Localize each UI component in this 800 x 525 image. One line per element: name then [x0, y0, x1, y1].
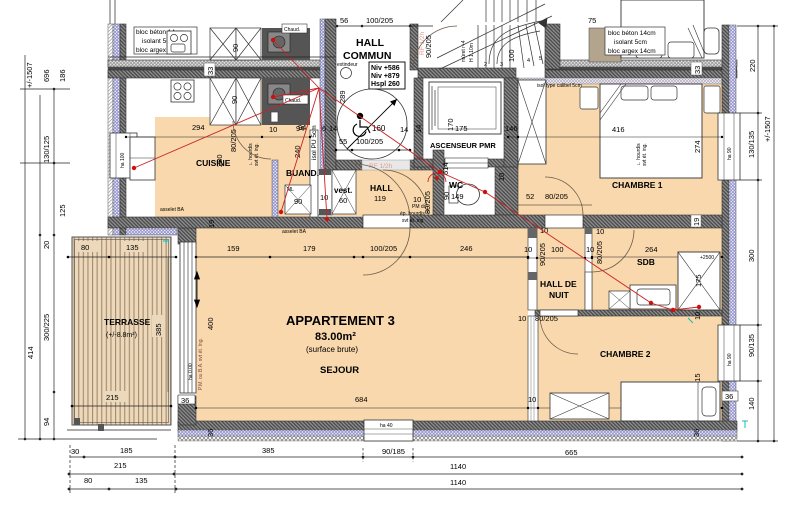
svg-text:90/205: 90/205 — [538, 243, 547, 266]
svg-text:10: 10 — [269, 125, 277, 134]
svg-text:400: 400 — [206, 317, 215, 330]
svg-text:P.M. ou B.A. svt ét. Ing.: P.M. ou B.A. svt ét. Ing. — [198, 338, 204, 390]
svg-text:684: 684 — [355, 395, 368, 404]
svg-text:280: 280 — [215, 154, 224, 167]
svg-text:HALL: HALL — [356, 37, 385, 49]
svg-text:19: 19 — [692, 218, 701, 226]
svg-text:10: 10 — [497, 173, 506, 181]
svg-text:414: 414 — [26, 346, 35, 359]
svg-text:130/135: 130/135 — [747, 131, 756, 158]
svg-text:1140: 1140 — [450, 478, 466, 487]
svg-text:ha 40: ha 40 — [380, 423, 393, 429]
svg-text:52: 52 — [526, 192, 534, 201]
svg-text:asselet BA: asselet BA — [282, 229, 307, 235]
svg-text:385: 385 — [154, 323, 163, 336]
svg-text:170: 170 — [446, 118, 455, 131]
svg-text:90: 90 — [294, 197, 302, 206]
svg-text:75: 75 — [588, 16, 596, 25]
svg-text:300/225: 300/225 — [42, 314, 51, 341]
svg-text:30: 30 — [71, 447, 79, 456]
svg-text:274: 274 — [693, 140, 702, 153]
svg-text:140: 140 — [747, 397, 756, 410]
svg-text:289: 289 — [338, 90, 347, 103]
svg-text:TERRASSE: TERRASSE — [104, 317, 151, 327]
svg-text:160: 160 — [372, 124, 386, 133]
svg-text:SEJOUR: SEJOUR — [320, 365, 359, 376]
svg-text:20: 20 — [42, 241, 51, 249]
svg-text:ASCENSEUR PMR: ASCENSEUR PMR — [430, 141, 496, 150]
svg-text:ha 0.00: ha 0.00 — [188, 363, 194, 380]
svg-text:90/185: 90/185 — [382, 447, 405, 456]
svg-text:220: 220 — [748, 59, 757, 72]
svg-text:(+/-8.8m²): (+/-8.8m²) — [106, 332, 137, 339]
svg-text:10: 10 — [596, 227, 604, 236]
svg-text:100/205: 100/205 — [366, 16, 393, 25]
svg-text:385: 385 — [262, 446, 275, 455]
svg-text:90/205: 90/205 — [424, 35, 433, 58]
svg-text:10: 10 — [693, 312, 702, 320]
svg-text:100/205: 100/205 — [370, 244, 397, 253]
svg-text:HALL: HALL — [370, 183, 393, 193]
svg-text:isol type calibel 5cm: isol type calibel 5cm — [537, 83, 582, 89]
svg-text:6: 6 — [322, 124, 326, 133]
svg-text:90/135: 90/135 — [747, 334, 756, 357]
svg-text:80: 80 — [81, 243, 89, 252]
svg-text:90: 90 — [442, 192, 451, 200]
svg-text:ha 90: ha 90 — [727, 353, 733, 366]
svg-text:19: 19 — [207, 220, 216, 228]
svg-text:ha 100: ha 100 — [120, 152, 126, 168]
svg-text:14: 14 — [414, 125, 423, 133]
svg-text:10: 10 — [528, 395, 536, 404]
svg-text:696: 696 — [42, 69, 51, 82]
svg-text:Chaud.: Chaud. — [284, 27, 300, 33]
svg-text:100: 100 — [507, 49, 516, 62]
svg-text:HALL DE: HALL DE — [540, 279, 577, 289]
svg-text:135: 135 — [126, 243, 139, 252]
svg-text:14: 14 — [400, 125, 408, 134]
svg-text:10: 10 — [518, 314, 526, 323]
svg-text:159: 159 — [227, 244, 240, 253]
svg-text:55: 55 — [339, 137, 347, 146]
svg-text:33: 33 — [206, 67, 215, 75]
svg-text:CHAMBRE 2: CHAMBRE 2 — [600, 349, 651, 359]
svg-text:mûret r+4: mûret r+4 — [461, 40, 467, 62]
svg-text:BUAND.: BUAND. — [286, 168, 319, 178]
svg-text:4: 4 — [527, 58, 530, 64]
svg-text:215: 215 — [106, 393, 119, 402]
svg-text:264: 264 — [645, 245, 658, 254]
svg-text:Niv +586: Niv +586 — [371, 65, 400, 72]
svg-text:ép. hourdis: ép. hourdis — [400, 211, 425, 217]
svg-text:PM ds: PM ds — [412, 204, 427, 210]
svg-text:2: 2 — [484, 62, 487, 68]
svg-text:119: 119 — [374, 194, 386, 203]
svg-text:94: 94 — [42, 418, 51, 426]
svg-text:36: 36 — [725, 392, 733, 401]
svg-text:NUIT: NUIT — [549, 290, 570, 300]
svg-text:80/205: 80/205 — [545, 192, 568, 201]
svg-text:+/-1507: +/-1507 — [763, 116, 772, 142]
svg-text:185: 185 — [120, 446, 133, 455]
svg-text:36: 36 — [206, 429, 215, 437]
svg-text:130/125: 130/125 — [42, 136, 51, 163]
svg-text:5: 5 — [539, 56, 542, 62]
svg-text:246: 246 — [460, 244, 473, 253]
svg-text:extindeur: extindeur — [337, 62, 358, 68]
svg-text:94: 94 — [298, 123, 306, 132]
svg-text:146: 146 — [505, 124, 518, 133]
svg-text:10: 10 — [586, 245, 594, 254]
svg-text:10: 10 — [320, 193, 328, 202]
svg-text:ha 90: ha 90 — [727, 147, 733, 160]
svg-text:80: 80 — [84, 476, 92, 485]
svg-text:svt ét. ing.: svt ét. ing. — [642, 143, 648, 166]
svg-text:186: 186 — [58, 69, 67, 82]
svg-text:1140: 1140 — [450, 462, 466, 471]
svg-text:Niv +879: Niv +879 — [371, 73, 400, 80]
svg-text:CUISINE: CUISINE — [196, 158, 231, 168]
svg-text:COMMUN: COMMUN — [343, 50, 391, 62]
svg-text:300: 300 — [747, 249, 756, 262]
svg-text:RF 1/2h: RF 1/2h — [369, 163, 393, 170]
svg-text:100: 100 — [551, 245, 564, 254]
svg-text:+2500: +2500 — [700, 255, 714, 261]
svg-text:10: 10 — [524, 245, 532, 254]
svg-text:175: 175 — [455, 124, 468, 133]
svg-text:90: 90 — [230, 96, 239, 104]
svg-text:60: 60 — [339, 196, 347, 205]
svg-text:90: 90 — [231, 44, 240, 52]
svg-text:215: 215 — [114, 461, 127, 470]
svg-text:asselet BA: asselet BA — [160, 207, 185, 213]
svg-text:665: 665 — [565, 448, 578, 457]
svg-text:CHAMBRE 1: CHAMBRE 1 — [612, 180, 663, 190]
svg-text:135: 135 — [135, 476, 148, 485]
svg-text:isolant 5cm: isolant 5cm — [614, 39, 647, 46]
svg-text:+/-1507: +/-1507 — [25, 62, 34, 88]
svg-text:svt ét. ing: svt ét. ing — [402, 218, 424, 224]
svg-text:83.00m²: 83.00m² — [315, 331, 356, 343]
svg-text:H 1.10m: H 1.10m — [469, 43, 475, 62]
svg-text:isol PU 5cm: isol PU 5cm — [311, 125, 318, 160]
svg-text:56: 56 — [340, 16, 348, 25]
svg-text:10: 10 — [413, 195, 421, 204]
svg-text:294: 294 — [192, 123, 205, 132]
svg-text:14: 14 — [329, 124, 337, 133]
svg-text:bloc argex 14cm: bloc argex 14cm — [608, 48, 656, 55]
svg-text:36: 36 — [692, 429, 701, 437]
svg-text:SDB: SDB — [637, 257, 655, 267]
svg-text:APPARTEMENT 3: APPARTEMENT 3 — [286, 313, 395, 328]
svg-text:80/205: 80/205 — [595, 241, 604, 264]
svg-text:33: 33 — [693, 66, 702, 74]
svg-text:100/205: 100/205 — [356, 137, 383, 146]
svg-text:3: 3 — [500, 62, 503, 68]
svg-text:Hspl 260: Hspl 260 — [371, 81, 400, 88]
svg-text:vest.: vest. — [334, 186, 352, 195]
svg-text:175: 175 — [694, 274, 703, 287]
svg-text:(surface brute): (surface brute) — [306, 345, 358, 354]
svg-text:80/205: 80/205 — [535, 314, 558, 323]
svg-text:179: 179 — [303, 244, 316, 253]
svg-text:125: 125 — [58, 204, 67, 217]
svg-text:svt ét. ing.: svt ét. ing. — [254, 143, 260, 166]
svg-text:36: 36 — [181, 396, 189, 405]
svg-text:149: 149 — [451, 192, 464, 201]
svg-text:80/205: 80/205 — [229, 129, 238, 152]
svg-text:bloc béton 14cm: bloc béton 14cm — [608, 30, 656, 37]
svg-text:416: 416 — [612, 125, 625, 134]
